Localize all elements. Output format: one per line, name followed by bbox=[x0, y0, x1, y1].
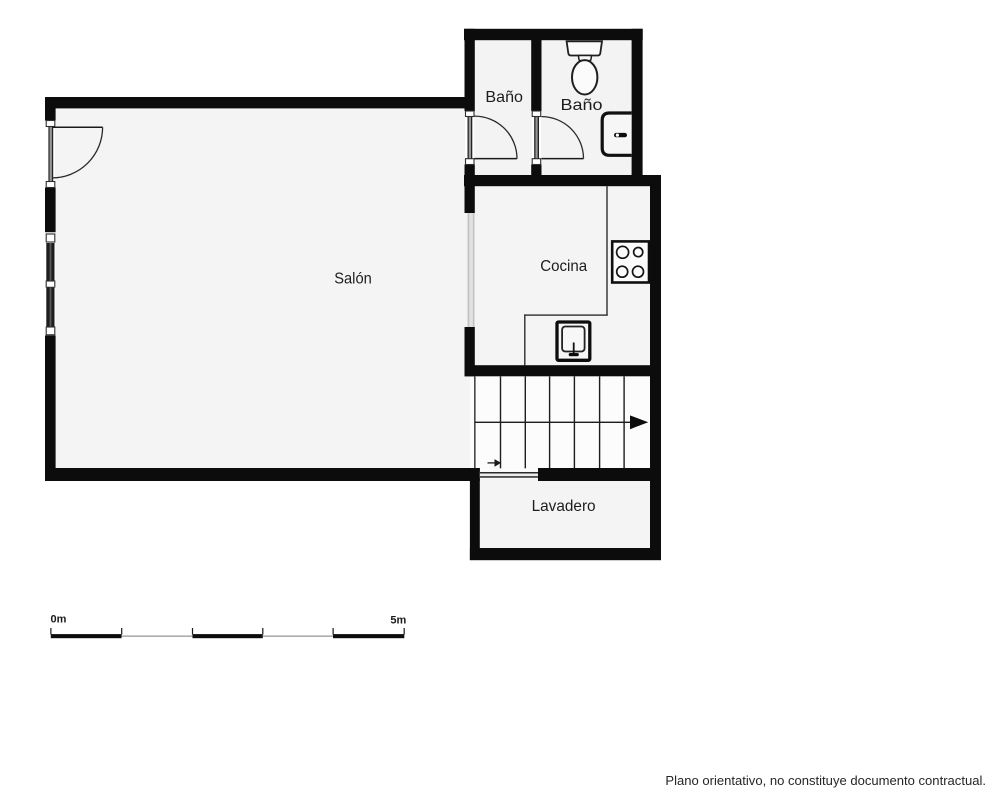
svg-text:Baño: Baño bbox=[561, 97, 603, 114]
svg-text:0m: 0m bbox=[51, 614, 67, 626]
svg-text:Lavadero: Lavadero bbox=[532, 498, 596, 515]
svg-text:Salón: Salón bbox=[334, 271, 372, 288]
svg-text:Plano orientativo, no constitu: Plano orientativo, no constituye documen… bbox=[665, 773, 986, 788]
svg-text:Baño: Baño bbox=[485, 89, 523, 106]
svg-text:Cocina: Cocina bbox=[540, 258, 587, 275]
svg-text:5m: 5m bbox=[390, 615, 406, 627]
